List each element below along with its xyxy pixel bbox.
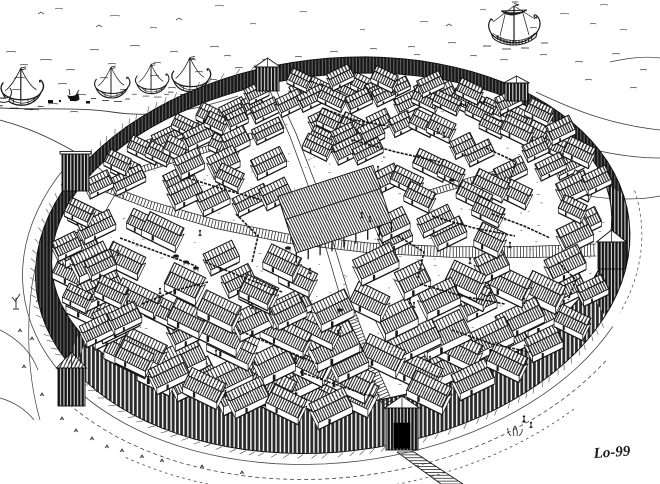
svg-text:Lo-99: Lo-99 [592,443,631,462]
